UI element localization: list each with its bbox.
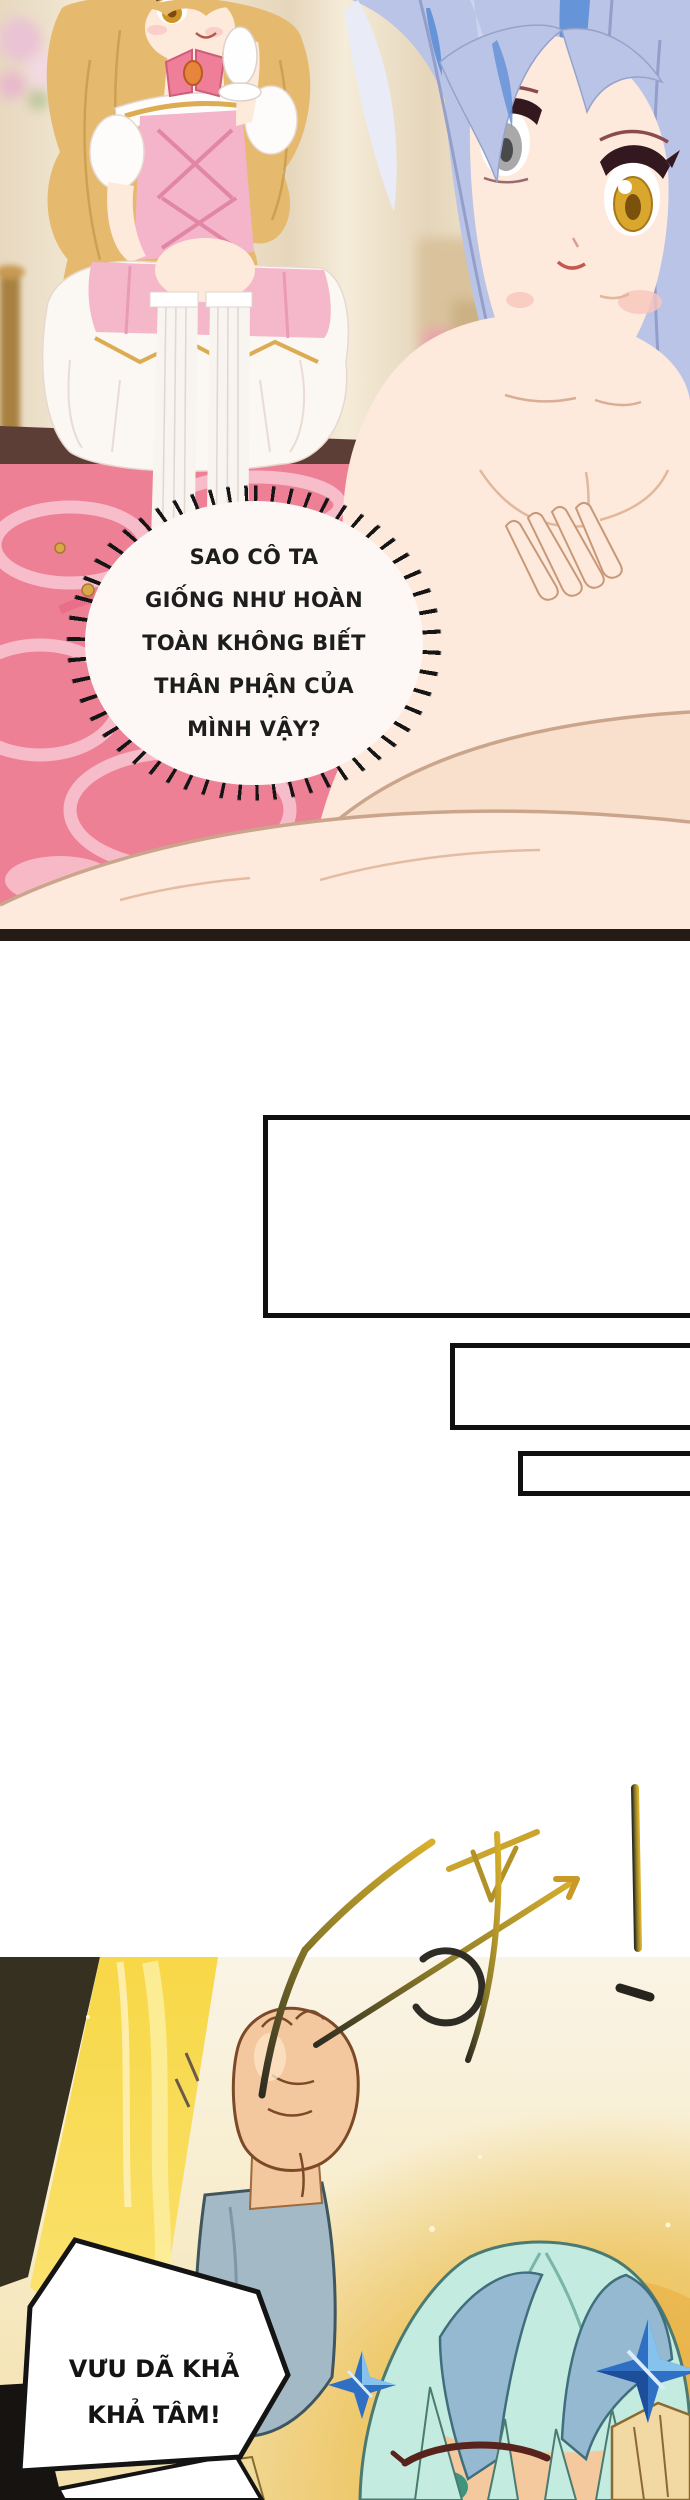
bubble-text-line: MÌNH VẬY? xyxy=(58,708,450,751)
comic-page: SAO CÔ TA GIỐNG NHƯ HOÀN TOÀN KHÔNG BIẾT… xyxy=(0,0,690,2500)
empty-speech-box-2 xyxy=(450,1343,690,1430)
burst-speech-bubble: SAO CÔ TA GIỐNG NHƯ HOÀN TOÀN KHÔNG BIẾT… xyxy=(58,478,450,808)
empty-speech-box-3 xyxy=(518,1451,690,1496)
bubble2-text-line: VƯU DÃ KHẢ xyxy=(28,2346,280,2392)
panel-top-border xyxy=(0,929,690,941)
signature-scribble xyxy=(180,1745,660,2165)
bubble2-text-line: KHẢ TÂM! xyxy=(28,2392,280,2438)
empty-speech-box-1 xyxy=(263,1115,690,1318)
bubble-text: SAO CÔ TA GIỐNG NHƯ HOÀN TOÀN KHÔNG BIẾT… xyxy=(58,478,450,808)
bubble-text-line: GIỐNG NHƯ HOÀN xyxy=(58,579,450,622)
bubble-text-line: THÂN PHẬN CỦA xyxy=(58,665,450,708)
chest-bow xyxy=(166,50,224,96)
bubble-text-line: TOÀN KHÔNG BIẾT xyxy=(58,622,450,665)
angular-bubble-text: VƯU DÃ KHẢ KHẢ TÂM! xyxy=(28,2346,280,2438)
bubble-text-line: SAO CÔ TA xyxy=(58,536,450,579)
